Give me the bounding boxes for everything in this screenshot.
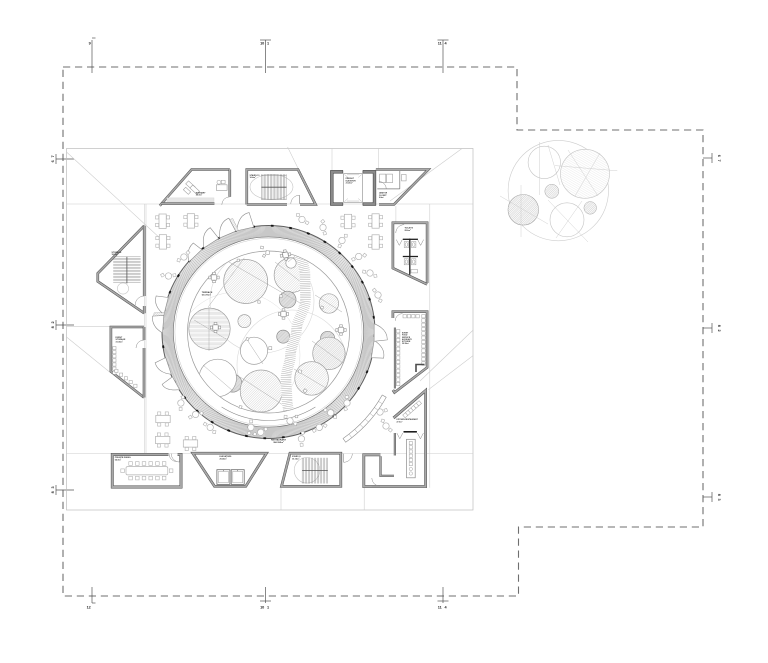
svg-text:2: 2: [51, 321, 55, 323]
svg-text:2: 2: [717, 330, 721, 332]
svg-text:3: 3: [717, 499, 721, 501]
svg-text:8: 8: [717, 325, 721, 327]
svg-text:3: 3: [51, 486, 55, 488]
svg-text:1: 1: [267, 606, 269, 610]
svg-text:6: 6: [717, 155, 721, 157]
svg-text:8: 8: [51, 326, 55, 328]
svg-text:7: 7: [717, 160, 721, 162]
svg-text:7: 7: [51, 155, 55, 157]
svg-text:12: 12: [87, 606, 91, 610]
svg-text:10: 10: [260, 42, 264, 46]
svg-text:6: 6: [51, 160, 55, 162]
svg-text:8: 8: [51, 491, 55, 493]
svg-text:8: 8: [717, 494, 721, 496]
svg-text:11: 11: [438, 42, 442, 46]
svg-text:11: 11: [438, 606, 442, 610]
svg-text:10: 10: [260, 606, 264, 610]
svg-text:1: 1: [267, 42, 269, 46]
svg-text:9: 9: [89, 42, 91, 46]
